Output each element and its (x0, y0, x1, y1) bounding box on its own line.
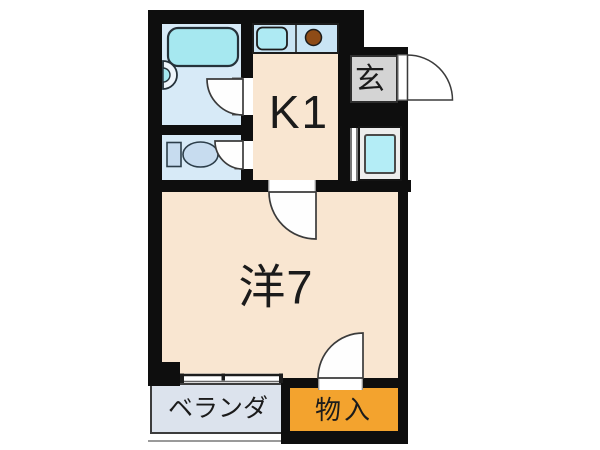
bathroom-door (207, 78, 253, 115)
western-room-label: 洋7 (238, 264, 313, 311)
veranda-label: ベランダ (168, 397, 268, 422)
toilet-tank-icon (167, 143, 181, 167)
burner-icon (306, 30, 322, 46)
storage-label: 物入 (315, 397, 373, 423)
toilet-bowl-icon (183, 142, 218, 167)
kitchen-sink-icon (257, 28, 287, 50)
toilet-door (215, 141, 253, 169)
entrance-label: 玄 (355, 65, 385, 95)
storage-door (318, 333, 363, 390)
floor-plan: K1 玄 洋7 ベランダ 物入 (0, 0, 600, 450)
entrance-door (398, 55, 453, 100)
fixtures-layer (0, 0, 600, 450)
kitchen-label: K1 (269, 89, 329, 135)
sliding-window-icon (180, 374, 283, 384)
kitchen-room-door (268, 180, 316, 239)
bathtub-icon (168, 28, 238, 66)
